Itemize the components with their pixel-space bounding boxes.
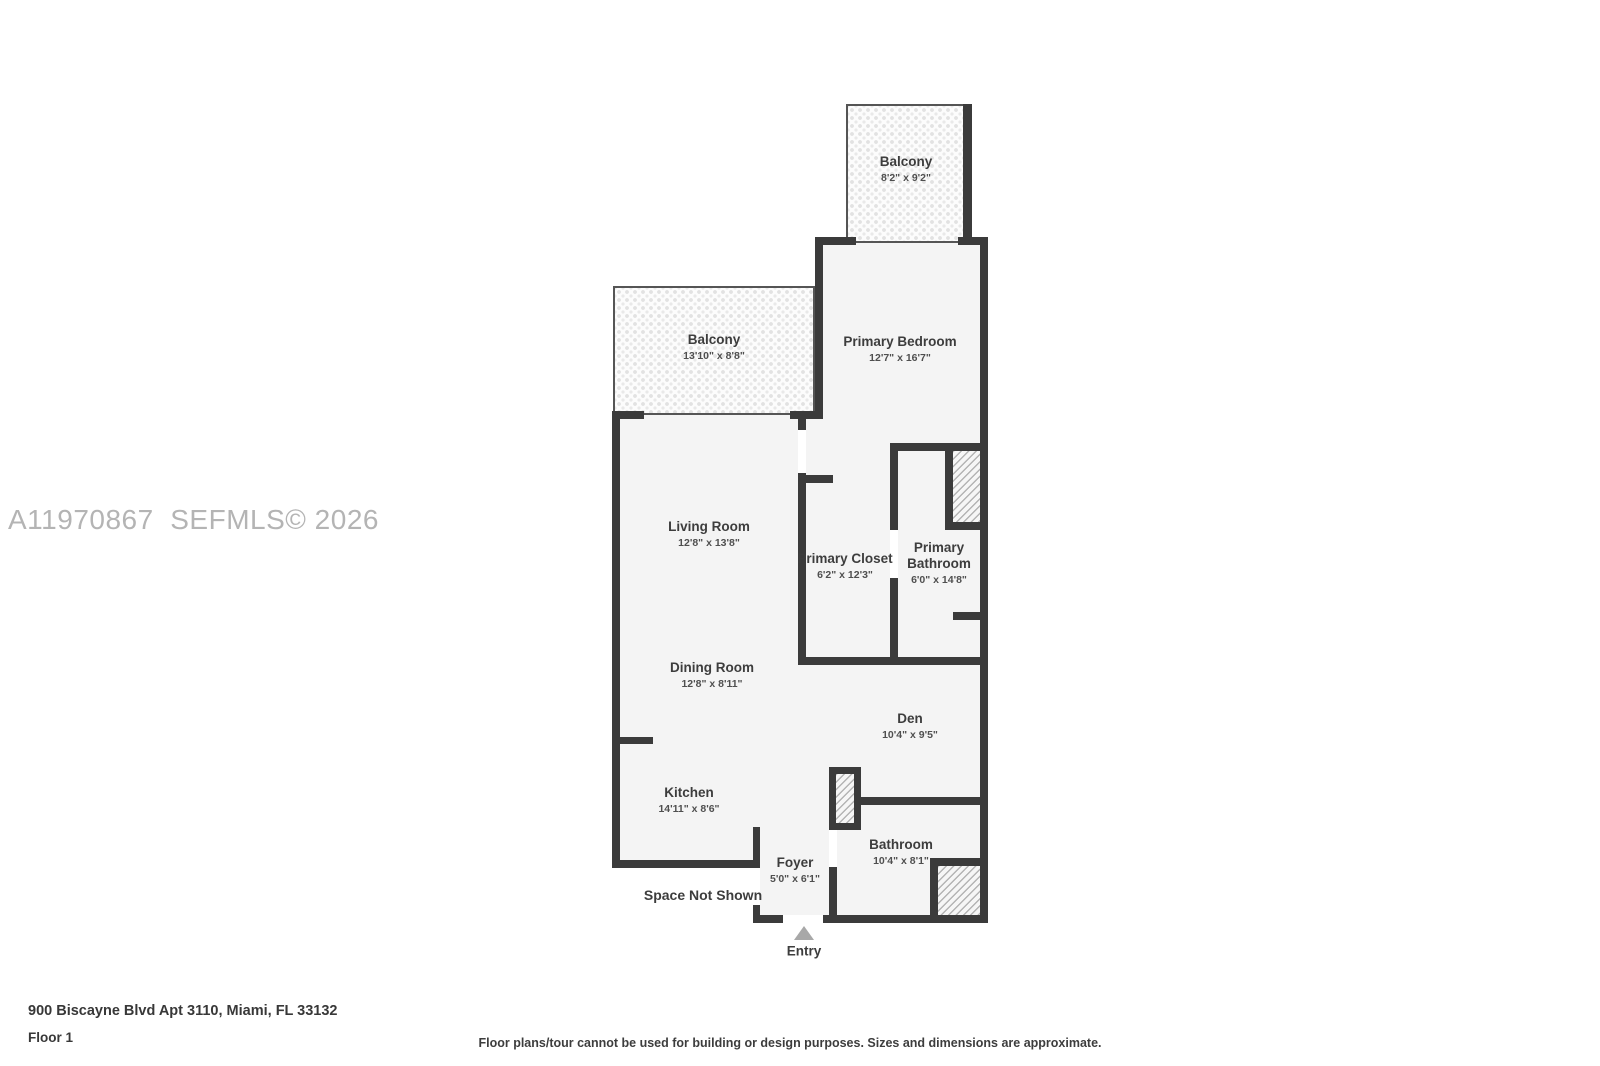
room-name: Primary Closet xyxy=(797,551,892,567)
disclaimer-text: Floor plans/tour cannot be used for buil… xyxy=(0,1036,1580,1050)
wall xyxy=(798,411,806,430)
entry-door-opening xyxy=(783,915,823,923)
room-dims: 8'2" x 9'2" xyxy=(880,172,933,184)
wall xyxy=(815,237,823,419)
wall xyxy=(953,612,988,620)
room-name: Bathroom xyxy=(869,837,933,853)
wall xyxy=(930,858,988,866)
wall xyxy=(753,827,760,868)
bedroom-fill xyxy=(815,237,988,411)
room-name: Balcony xyxy=(683,332,745,348)
room-label-kitchen: Kitchen 14'11" x 8'6" xyxy=(658,785,719,815)
room-label-primary-bedroom: Primary Bedroom 12'7" x 16'7" xyxy=(843,334,956,364)
room-name: Balcony xyxy=(880,154,933,170)
wall xyxy=(945,522,988,530)
property-address: 900 Biscayne Blvd Apt 3110, Miami, FL 33… xyxy=(28,1003,338,1019)
wall xyxy=(612,860,760,868)
shower-hatch xyxy=(938,866,980,915)
room-name: Primary Bedroom xyxy=(843,334,956,350)
room-name: Primary Bathroom xyxy=(895,540,983,572)
room-label-balcony-top: Balcony 8'2" x 9'2" xyxy=(880,154,933,184)
room-dims: 10'4" x 8'1" xyxy=(869,855,933,867)
wall xyxy=(890,443,988,451)
room-dims: 5'0" x 6'1" xyxy=(770,873,820,885)
room-label-den: Den 10'4" x 9'5" xyxy=(882,711,938,741)
room-label-foyer: Foyer 5'0" x 6'1" xyxy=(770,855,820,885)
door-opening xyxy=(829,830,837,867)
wall xyxy=(890,443,898,530)
floor-plan-page: A11970867 SEFMLS© 2026 Balcony 8'2" xyxy=(0,0,1600,1066)
utility-closet-hatch xyxy=(836,774,854,823)
entry-arrow-icon xyxy=(794,926,814,940)
room-dims: 10'4" x 9'5" xyxy=(882,729,938,741)
room-label-balcony-left: Balcony 13'10" x 8'8" xyxy=(683,332,745,362)
wall xyxy=(753,915,783,923)
wall xyxy=(612,411,620,868)
wall xyxy=(798,657,988,665)
room-dims: 13'10" x 8'8" xyxy=(683,350,745,362)
wall xyxy=(890,578,898,665)
wall xyxy=(945,443,953,530)
entry-label: Entry xyxy=(787,944,822,959)
room-dims: 12'8" x 8'11" xyxy=(670,678,754,690)
wall xyxy=(861,797,988,805)
room-name: Den xyxy=(882,711,938,727)
room-name: Dining Room xyxy=(670,660,754,676)
room-label-living-room: Living Room 12'8" x 13'8" xyxy=(668,519,750,549)
room-dims: 12'8" x 13'8" xyxy=(668,537,750,549)
room-label-primary-closet: Primary Closet 6'2" x 12'3" xyxy=(797,551,892,581)
room-label-bathroom: Bathroom 10'4" x 8'1" xyxy=(869,837,933,867)
mls-watermark: A11970867 SEFMLS© 2026 xyxy=(8,504,379,536)
room-dims: 6'0" x 14'8" xyxy=(895,574,983,586)
room-name: Living Room xyxy=(668,519,750,535)
wall xyxy=(829,867,837,923)
space-not-shown-label: Space Not Shown xyxy=(644,887,762,903)
room-dims: 12'7" x 16'7" xyxy=(843,352,956,364)
shower-hatch xyxy=(953,451,980,522)
wall xyxy=(930,858,938,923)
room-dims: 14'11" x 8'6" xyxy=(658,803,719,815)
room-dims: 6'2" x 12'3" xyxy=(797,569,892,581)
wall xyxy=(823,915,988,923)
room-name: Kitchen xyxy=(658,785,719,801)
wall xyxy=(798,475,833,483)
door-opening xyxy=(798,430,806,473)
room-label-primary-bathroom: Primary Bathroom 6'0" x 14'8" xyxy=(895,540,983,586)
room-label-dining-room: Dining Room 12'8" x 8'11" xyxy=(670,660,754,690)
wall xyxy=(612,737,653,744)
wall xyxy=(963,104,972,245)
wall xyxy=(790,411,823,419)
room-name: Foyer xyxy=(770,855,820,871)
